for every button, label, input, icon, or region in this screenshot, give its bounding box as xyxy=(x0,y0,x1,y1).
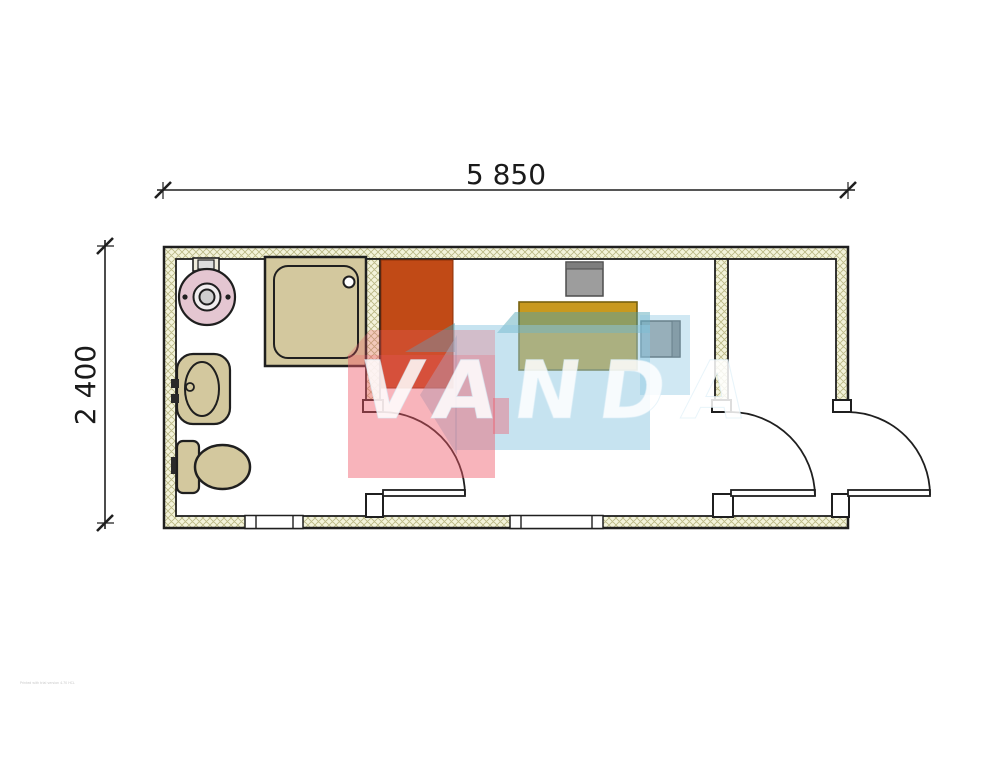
right-door-opening xyxy=(834,411,852,496)
chair-top xyxy=(566,262,603,296)
boiler-dot-right xyxy=(225,294,230,299)
washbasin-tap-bottom xyxy=(171,394,179,403)
toilet-bowl xyxy=(195,445,250,489)
bathroom-door-leaf xyxy=(383,490,465,496)
top-dimension: 5 850 xyxy=(155,158,856,199)
shower-tray xyxy=(265,257,366,366)
right-door-leaf xyxy=(848,490,930,496)
top-dimension-label: 5 850 xyxy=(466,158,546,191)
left-dimension: 2 400 xyxy=(69,238,114,531)
watermark-brand-text: VANDA xyxy=(354,343,771,437)
left-dimension-label: 2 400 xyxy=(69,345,102,425)
right-door-top-jamb xyxy=(833,400,851,412)
right-door-hinge-jamb xyxy=(832,494,849,517)
window-1 xyxy=(245,516,303,529)
boiler-bracket-inner xyxy=(198,260,214,269)
boiler-dot-left xyxy=(182,294,187,299)
floor-plan-canvas: VANDA 5 850 2 400 Printed with trial ver… xyxy=(0,0,1000,757)
window-2-frame xyxy=(510,516,603,529)
washbasin-tap-top xyxy=(171,379,179,388)
bathroom-door-hinge-jamb xyxy=(366,494,383,517)
middle-door-leaf xyxy=(731,490,815,496)
middle-door-hinge-jamb xyxy=(713,494,733,517)
watermark-text-group: VANDA xyxy=(354,343,771,437)
window-1-frame xyxy=(245,516,303,529)
fine-print: Printed with trial version 4.70 HCL xyxy=(20,681,75,685)
boiler-core xyxy=(200,290,215,305)
shower-drain xyxy=(344,277,355,288)
chair-top-backrest xyxy=(566,262,603,269)
window-2 xyxy=(510,516,603,529)
right-door-arc xyxy=(848,412,930,495)
